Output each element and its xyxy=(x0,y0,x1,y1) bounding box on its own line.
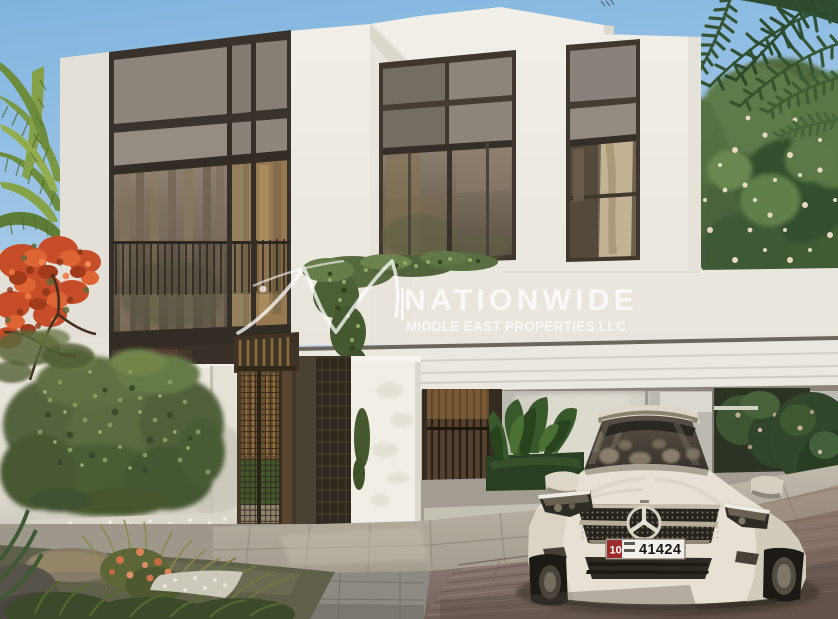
svg-text:10: 10 xyxy=(610,545,622,557)
svg-text:MIDDLE EAST PROPERTIES LLC: MIDDLE EAST PROPERTIES LLC xyxy=(406,319,626,334)
svg-text:NATIONWIDE: NATIONWIDE xyxy=(404,284,638,317)
svg-text:41424: 41424 xyxy=(639,542,681,558)
